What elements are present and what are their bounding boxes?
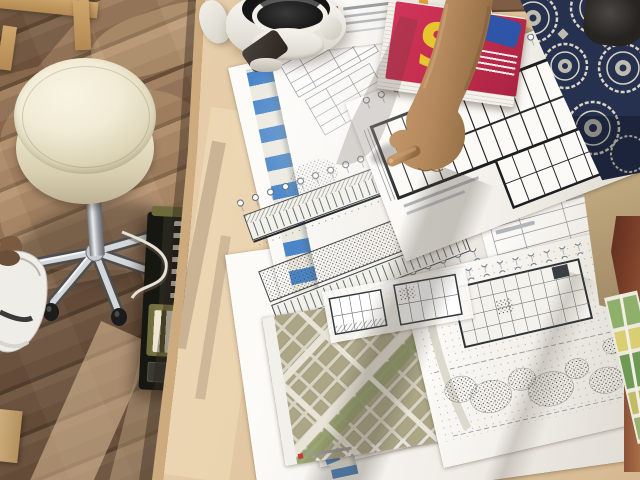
pointing-arm bbox=[0, 0, 640, 480]
fingernail bbox=[389, 159, 393, 163]
photo-scene: S bbox=[0, 0, 640, 480]
